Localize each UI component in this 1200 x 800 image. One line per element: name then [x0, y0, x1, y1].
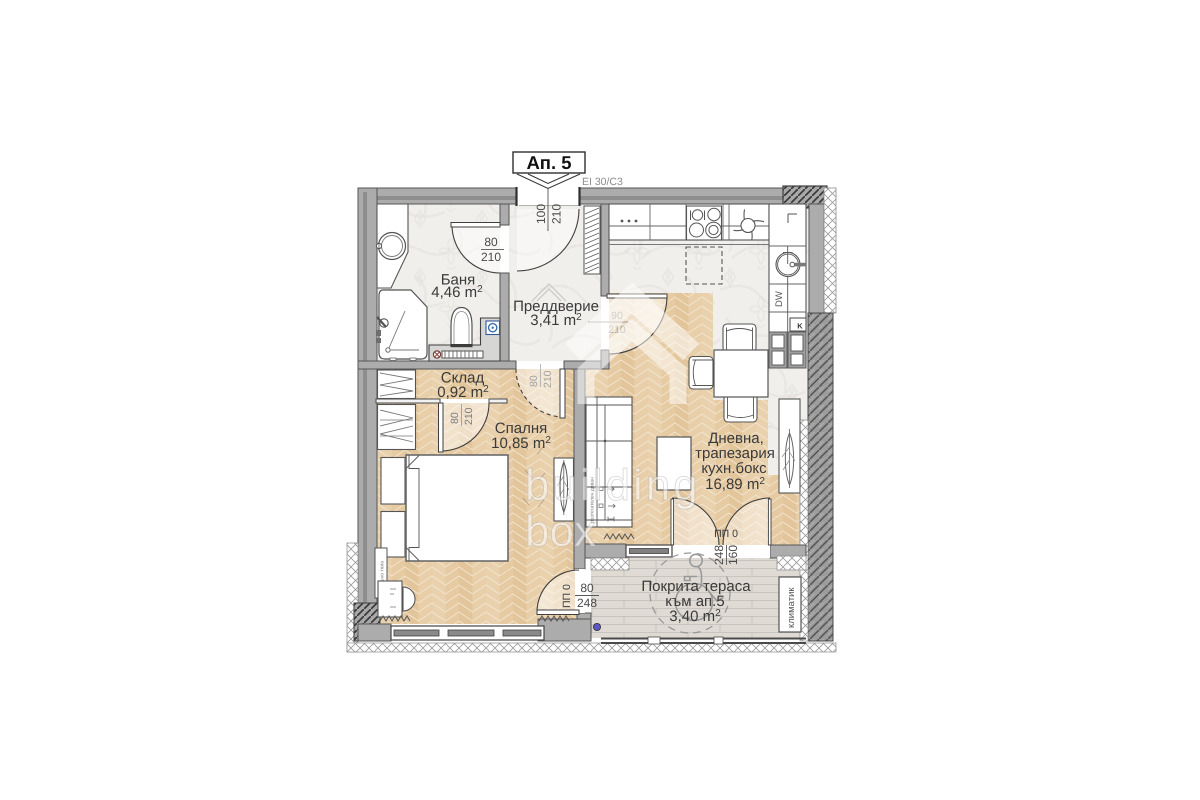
svg-text:0,92 m2: 0,92 m2	[437, 384, 489, 402]
svg-text:210: 210	[550, 204, 564, 224]
svg-text:ПП 0: ПП 0	[714, 528, 738, 540]
svg-text:EI 30/C3: EI 30/C3	[582, 176, 623, 188]
svg-text:кухн.бокс: кухн.бокс	[701, 460, 767, 477]
svg-text:box: box	[525, 507, 596, 556]
svg-text:80: 80	[580, 581, 594, 595]
svg-text:16,89 m2: 16,89 m2	[705, 476, 765, 494]
svg-text:климатик: климатик	[786, 587, 797, 628]
svg-text:80: 80	[484, 235, 498, 249]
svg-text:210: 210	[481, 250, 501, 264]
svg-text:248: 248	[577, 596, 597, 610]
svg-text:Ап. 5: Ап. 5	[526, 152, 571, 173]
svg-text:ПП 0: ПП 0	[561, 584, 573, 608]
svg-text:80: 80	[528, 375, 540, 387]
svg-text:K: K	[797, 322, 803, 331]
svg-text:80: 80	[449, 412, 461, 424]
svg-text:4,46 m2: 4,46 m2	[431, 284, 483, 302]
svg-text:210: 210	[542, 370, 554, 388]
svg-text:3,41 m2: 3,41 m2	[530, 312, 582, 330]
svg-text:building: building	[525, 461, 701, 510]
svg-text:10,85 m2: 10,85 m2	[491, 435, 551, 453]
svg-text:160: 160	[726, 545, 740, 565]
svg-text:100: 100	[534, 204, 548, 224]
svg-text:3,40 m2: 3,40 m2	[669, 608, 721, 626]
svg-text:210: 210	[463, 407, 475, 425]
svg-text:DW: DW	[774, 291, 785, 307]
svg-text:248: 248	[712, 545, 726, 565]
